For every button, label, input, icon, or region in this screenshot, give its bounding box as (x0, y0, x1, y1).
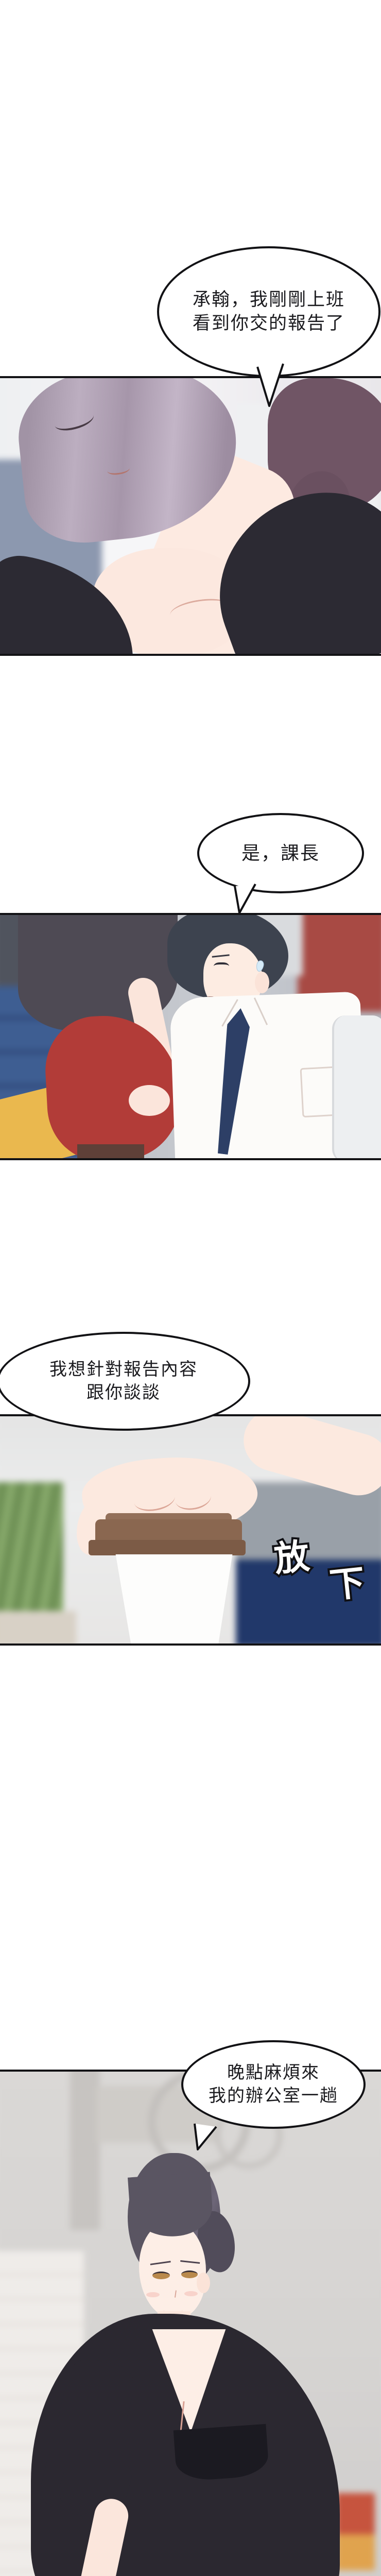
eye-left (152, 2272, 170, 2279)
bubble-3-line-1: 我想針對報告內容 (49, 1358, 198, 1381)
woman-legs (77, 1144, 144, 1160)
speech-bubble-4: 晚點麻煩來 我的辦公室一趟 (181, 2040, 366, 2129)
panel-2 (0, 913, 381, 1160)
bubble-4-tail (192, 2121, 220, 2151)
blush-right (184, 2291, 198, 2296)
bubble-2-tail (233, 882, 259, 915)
bubble-1-tail (255, 361, 286, 408)
woman-ear (197, 2273, 210, 2293)
bubble-4-line-2: 我的辦公室一趟 (209, 2084, 338, 2108)
cup-lid-rim (89, 1540, 246, 1555)
panel-1-figure (0, 378, 381, 654)
cup-body (109, 1554, 239, 1646)
speech-bubble-1: 承翰，我剛剛上班 看到你交的報告了 (157, 246, 380, 377)
man-eye (214, 962, 229, 972)
panel-4 (0, 2070, 381, 2576)
panel-3-figure: 放 下 (0, 1416, 381, 1643)
bubble-2-line-1: 是，課長 (241, 841, 320, 866)
sfx-char-1: 放 (272, 1536, 311, 1579)
eye-right (181, 2270, 198, 2278)
white-chair (332, 1015, 381, 1160)
panel-1 (0, 376, 381, 656)
panel-4-figure (0, 2072, 381, 2576)
bubble-4-line-1: 晚點麻煩來 (227, 2061, 320, 2084)
bubble-3-line-2: 跟你談談 (86, 1381, 161, 1404)
panel-3: 放 下 (0, 1414, 381, 1646)
sfx-char-2: 下 (328, 1563, 367, 1605)
forearm (236, 1414, 381, 1503)
bubble-1-line-1: 承翰，我剛剛上班 (193, 288, 345, 312)
sfx-fangxia: 放 下 (269, 1527, 381, 1618)
nose-line (170, 2290, 177, 2297)
speech-bubble-3: 我想針對報告內容 跟你談談 (0, 1332, 250, 1431)
bubble-1-line-2: 看到你交的報告了 (193, 312, 345, 335)
man-ear (255, 972, 269, 993)
webtoon-page: 承翰，我剛剛上班 看到你交的報告了 是，課長 (0, 0, 381, 2576)
panel-2-figures (0, 915, 381, 1158)
blush-left (146, 2292, 160, 2297)
woman-hand (129, 1085, 170, 1116)
speech-bubble-2: 是，課長 (197, 813, 364, 893)
